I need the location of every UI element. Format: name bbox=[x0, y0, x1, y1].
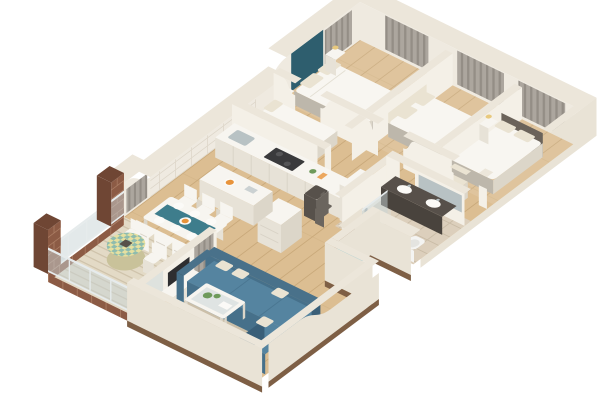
apartment-3d-floor-plan bbox=[0, 0, 600, 400]
floor-plan-stage bbox=[0, 0, 600, 400]
